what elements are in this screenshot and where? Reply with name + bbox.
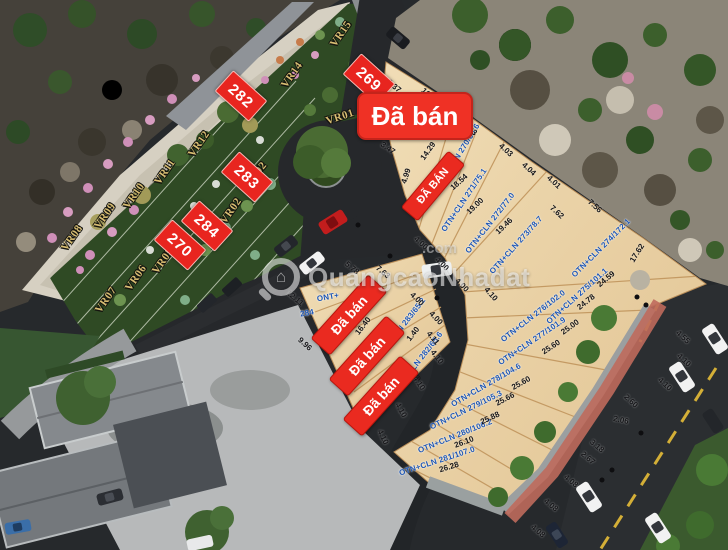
dimension-label: 7.56 [586,197,604,214]
dimension-label: 4.99 [399,167,412,185]
dimension-label: 2.06 [612,414,629,426]
lot-number-badge: 282 [215,70,268,122]
dimension-label: 25.60 [510,374,532,392]
dimension-label: 4.08 [529,523,547,540]
garden-plot-label: VR07 [93,285,119,316]
dimension-label: 4.10 [429,348,446,366]
lot-number-badge: 283 [221,151,274,203]
dimension-label: 12.11 [285,288,306,307]
dimension-label: 4.00 [433,255,450,272]
dimension-label: 1.40 [405,325,422,343]
dimension-label: 3.18 [588,438,606,455]
dimension-label: 3.47 [379,140,397,156]
garden-plot-label: VR01 [324,107,355,127]
dimension-label: 4.04 [520,160,538,177]
dimension-label: 4.00 [453,276,470,293]
dimension-label: 4.08 [562,473,580,490]
dimension-label: 4.10 [393,401,409,419]
dimension-label: 4.03 [497,141,515,158]
land-plot-label: OTN+CLN 273/78.7 [488,214,545,275]
dimension-label: 2.60 [622,392,640,409]
dimension-label: 25.60 [540,338,562,356]
dimension-label: 4.55 [674,328,692,345]
land-plot-label: 284 [299,307,314,318]
dimension-label: 4.00 [412,234,430,251]
dimension-label: 7.62 [548,203,566,220]
garden-plot-label: VR15 [328,19,354,50]
labels-overlay: VR01VR0202VR05VR06VR07VR08VR09VR10VR11VR… [0,0,728,550]
dimension-label: 17.62 [628,242,646,264]
site-plan-image: VR01VR0202VR05VR06VR07VR08VR09VR10VR11VR… [0,0,728,550]
dimension-label: 14.29 [419,140,438,162]
dimension-label: 4.10 [656,375,674,392]
garden-plot-label: VR09 [92,201,118,232]
dimension-label: 4.00 [427,309,444,326]
sold-badge: Đã bán [357,92,473,140]
dimension-label: 4.08 [542,497,560,514]
garden-plot-label: VR10 [121,181,147,212]
dimension-label: 4.10 [375,428,390,446]
land-plot-label: ONT+ [316,291,340,304]
dimension-label: 4.10 [675,351,693,368]
garden-plot-label: VR08 [59,223,85,254]
garden-plot-label: VR14 [279,60,305,91]
land-plot-label: OTN+CLN 281/107.0 [398,444,476,477]
dimension-label: 4.10 [482,285,499,303]
garden-plot-label: VR12 [186,129,212,160]
garden-plot-label: VR11 [152,157,178,187]
dimension-label: 4.01 [545,173,563,190]
dimension-label: 2.67 [579,450,597,467]
garden-plot-label: VR06 [123,263,149,294]
dimension-label: 5.78 [343,260,361,277]
dimension-label: 7.63 [374,264,392,281]
